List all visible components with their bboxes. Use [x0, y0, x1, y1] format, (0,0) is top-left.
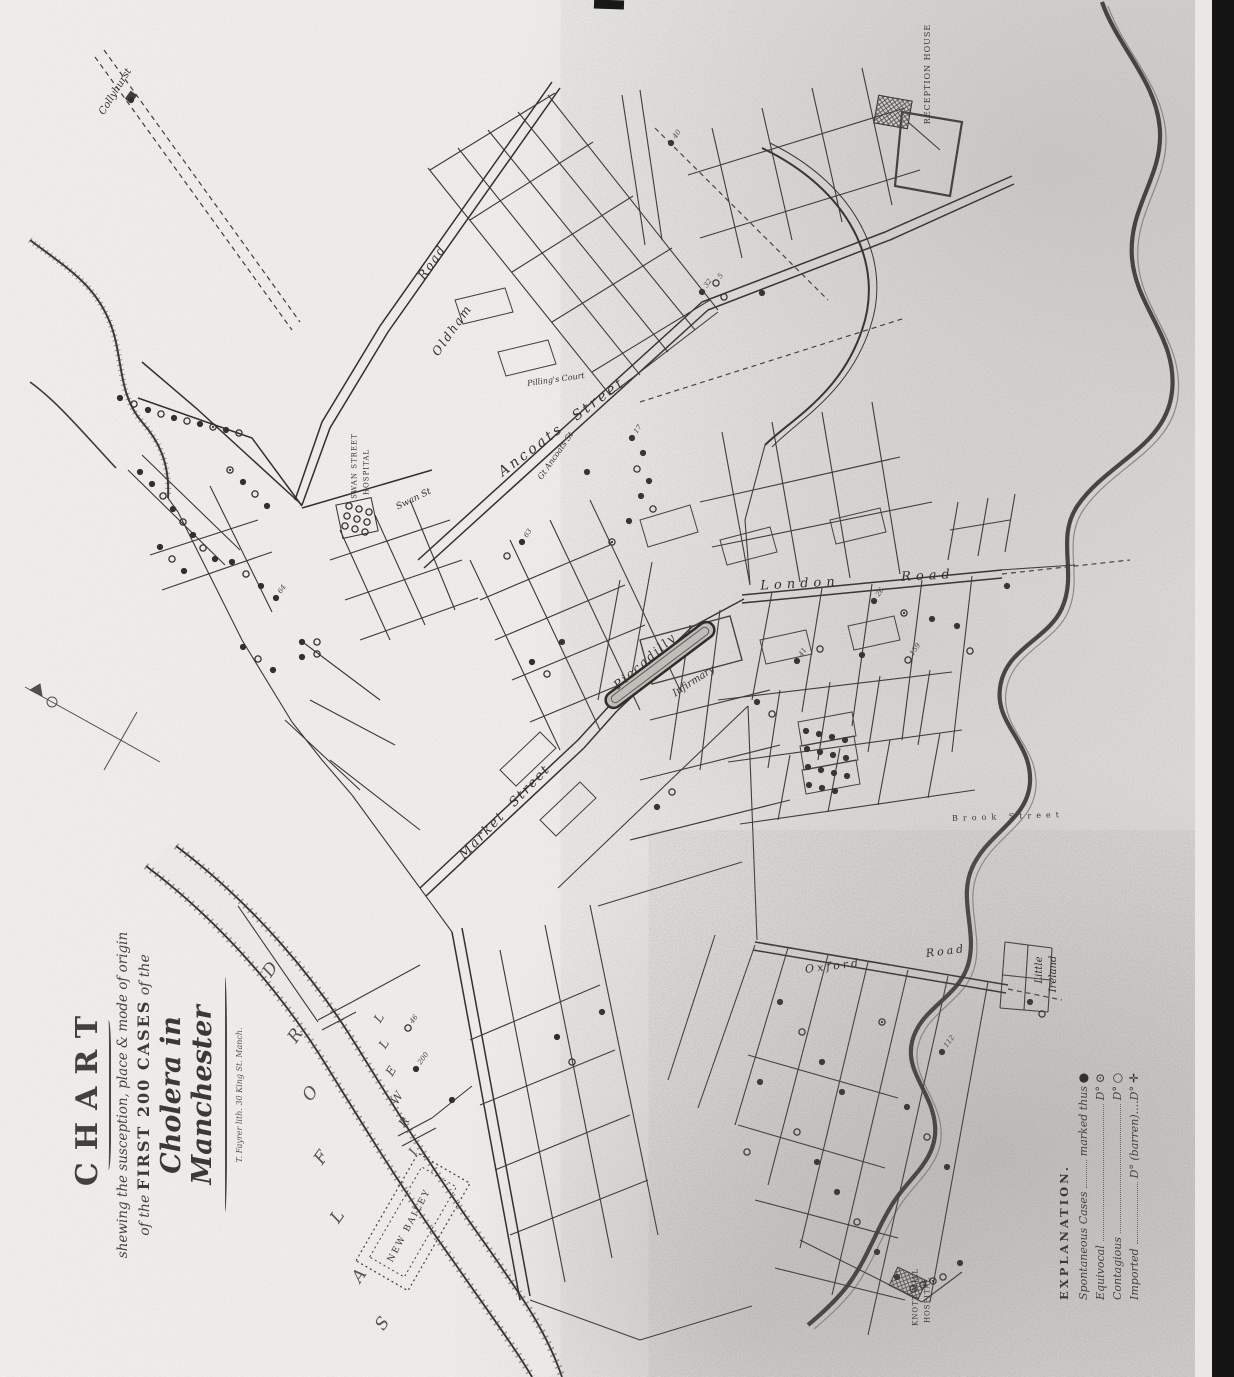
- map-label-london: London: [760, 575, 840, 592]
- title-underline-rule: [223, 978, 227, 1213]
- legend-value: D° (barren)....D°: [1128, 1086, 1141, 1178]
- map-label-road: Road: [901, 568, 955, 584]
- legend-row-equivocal: Equivocal D° ⊙: [1093, 1070, 1107, 1300]
- title-flourish-rule: [106, 1020, 111, 1170]
- scan-edge-strip: [1195, 0, 1212, 1377]
- map-label-hospital: HOSPITAL: [925, 1277, 932, 1323]
- legend-label: Contagious: [1111, 1237, 1124, 1300]
- map-title-subtitle: shewing the susception, place & mode of …: [115, 925, 131, 1265]
- legend-explanation: EXPLANATION. Spontaneous Cases marked th…: [1057, 1070, 1187, 1300]
- dotted-circle-icon: ⊙: [1093, 1070, 1107, 1086]
- legend-row-imported: Imported D° (barren)....D° ✛: [1127, 1070, 1141, 1300]
- map-label-hospital: HOSPITAL: [364, 449, 371, 495]
- map-title-line3: of the FIRST 200 CASES of the: [134, 925, 153, 1265]
- map-title-heading: CHART: [70, 925, 105, 1265]
- open-circle-icon: ○: [1110, 1070, 1124, 1086]
- legend-row-spontaneous: Spontaneous Cases marked thus ●: [1076, 1070, 1090, 1300]
- legend-leader: [1112, 1104, 1121, 1233]
- legend-label: Imported: [1128, 1248, 1141, 1300]
- legend-value: D°: [1094, 1086, 1107, 1100]
- legend-heading: EXPLANATION.: [1057, 1070, 1071, 1300]
- lithographer-credit: T. Fayrer lith. 30 King St. Manch.: [235, 925, 244, 1265]
- legend-label: Equivocal: [1094, 1245, 1107, 1300]
- title-of-the-prefix: of the: [137, 1195, 153, 1236]
- legend-row-contagious: Contagious D° ○: [1110, 1070, 1124, 1300]
- cross-icon: ✛: [1127, 1070, 1141, 1086]
- legend-leader: [1129, 1182, 1138, 1244]
- map-label-knott-mill: KNOTT MILL: [913, 1268, 920, 1326]
- map-title-block: CHART shewing the susception, place & mo…: [70, 925, 300, 1265]
- map-label-reception-house: RECEPTION HOUSE: [924, 24, 932, 124]
- scan-edge-bar: [1212, 0, 1234, 1377]
- title-of-the-suffix: of the: [137, 954, 153, 995]
- legend-label: Spontaneous Cases: [1077, 1192, 1090, 1300]
- legend-value: D°: [1111, 1086, 1124, 1100]
- map-label-little: Little: [1035, 957, 1045, 984]
- legend-leader: [1078, 1160, 1087, 1187]
- scan-mark-top: [594, 0, 624, 10]
- map-label-ireland: Ireland: [1049, 956, 1059, 993]
- scanned-map-page: 64173240563264115946200112 CollyhurstRoa…: [0, 0, 1234, 1377]
- map-title-cholera-line: Cholera in Manchester: [156, 925, 218, 1265]
- legend-value: marked thus: [1077, 1086, 1090, 1156]
- solid-circle-icon: ●: [1076, 1070, 1090, 1086]
- map-label-swan-street: SWAN STREET: [352, 433, 359, 499]
- title-first-200-cases: FIRST 200 CASES: [134, 1000, 153, 1191]
- legend-leader: [1095, 1104, 1104, 1241]
